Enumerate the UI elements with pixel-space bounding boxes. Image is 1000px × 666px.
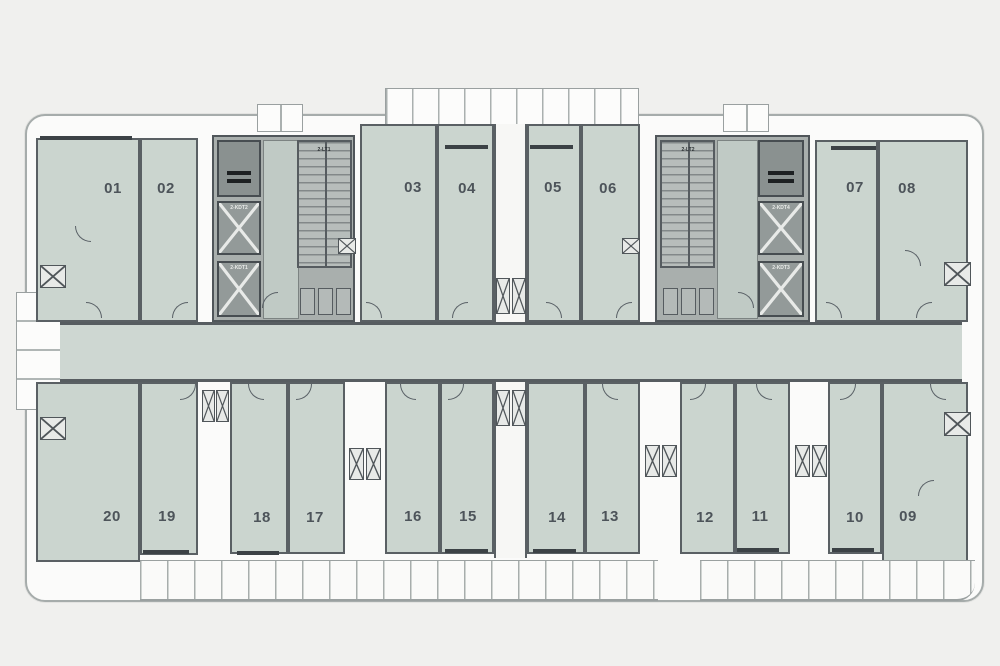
left-core-duct (300, 288, 315, 315)
window-sill (832, 548, 874, 552)
unit-label-18: 18 (253, 510, 271, 525)
central-corridor (60, 322, 962, 382)
unit-10 (828, 382, 882, 554)
right-core-duct (699, 288, 714, 315)
window-sill (737, 548, 779, 552)
unit-13 (585, 382, 640, 554)
bath-shower-xbox (622, 238, 640, 254)
unit-12 (680, 382, 735, 554)
unit-18 (230, 382, 288, 554)
left-core-duct (318, 288, 333, 315)
unit-label-19: 19 (158, 509, 176, 524)
unit-label-17: 17 (306, 510, 324, 525)
unit-04 (437, 124, 494, 322)
shaft-xbox (496, 278, 510, 314)
unit-09 (882, 382, 968, 570)
left-core-elevator-2-label: 2-KDT2 (230, 206, 248, 211)
left-core-elevator-1-label: 2-KDT1 (230, 266, 248, 271)
unit-11 (735, 382, 790, 554)
unit-label-04: 04 (458, 181, 476, 196)
right-core-elevator-4-label: 2-KDT4 (772, 206, 790, 211)
unit-label-10: 10 (846, 510, 864, 525)
unit-15 (440, 382, 494, 554)
bath-shower-xbox (338, 238, 356, 254)
unit-label-16: 16 (404, 509, 422, 524)
lightwell-xbox (662, 445, 677, 477)
unit-label-15: 15 (459, 509, 477, 524)
right-core-duct (681, 288, 696, 315)
top-left-small-balcony (257, 104, 303, 132)
unit-label-07: 07 (846, 180, 864, 195)
bath-shower-xbox (944, 412, 971, 436)
bottom-balcony-railing-left (140, 560, 658, 601)
unit-02 (140, 138, 198, 322)
right-core-duct (663, 288, 678, 315)
lightwell-xbox (812, 445, 827, 477)
vent-bars (227, 171, 251, 185)
unit-label-14: 14 (548, 510, 566, 525)
bath-shower-xbox (40, 265, 66, 288)
balcony-line (17, 349, 63, 351)
unit-20 (36, 382, 140, 562)
window-sill (40, 136, 132, 140)
unit-03 (360, 124, 437, 322)
unit-label-02: 02 (157, 181, 175, 196)
lightwell-xbox (795, 445, 810, 477)
bath-shower-xbox (40, 417, 66, 440)
unit-label-08: 08 (898, 181, 916, 196)
right-core-elevator-3-label: 2-KDT3 (772, 266, 790, 271)
window-sill (445, 549, 488, 553)
window-sill (445, 145, 488, 149)
unit-05 (527, 124, 581, 322)
lightwell-xbox (216, 390, 229, 422)
balcony-divider (280, 105, 282, 131)
shaft-xbox (512, 278, 526, 314)
floor-plan-page: { "figure": { "type": "apartment-floor-p… (0, 0, 1000, 666)
unit-label-01: 01 (104, 181, 122, 196)
left-core-lobby (263, 140, 299, 319)
unit-label-20: 20 (103, 509, 121, 524)
unit-14 (527, 382, 585, 554)
window-sill (530, 145, 573, 149)
right-core-vent-shaft (758, 140, 804, 197)
vent-bars (768, 171, 793, 185)
shaft-xbox (496, 390, 510, 426)
unit-label-09: 09 (899, 509, 917, 524)
unit-label-06: 06 (599, 181, 617, 196)
right-core-stair-label: 2-LT2 (682, 148, 695, 153)
lightwell-xbox (645, 445, 660, 477)
stair-divider (688, 142, 690, 266)
unit-06 (581, 124, 640, 322)
unit-17 (288, 382, 345, 554)
unit-label-03: 03 (404, 180, 422, 195)
lightwell-xbox (349, 448, 364, 480)
balcony-line (17, 378, 63, 380)
unit-label-05: 05 (544, 180, 562, 195)
bottom-balcony-railing-right (700, 560, 975, 601)
unit-label-13: 13 (601, 509, 619, 524)
bath-shower-xbox (944, 262, 971, 286)
left-core-duct (336, 288, 351, 315)
window-sill (237, 551, 279, 555)
window-sill (533, 549, 576, 553)
unit-label-12: 12 (696, 510, 714, 525)
stair-divider (325, 142, 327, 266)
unit-08 (878, 140, 968, 322)
unit-16 (385, 382, 440, 554)
top-right-small-balcony (723, 104, 769, 132)
window-sill (831, 146, 876, 150)
shaft-xbox (512, 390, 526, 426)
window-sill (143, 550, 189, 554)
unit-19 (140, 382, 198, 555)
lightwell-xbox (202, 390, 215, 422)
balcony-divider (746, 105, 748, 131)
left-core-stair-label: 2-LT1 (318, 148, 331, 153)
unit-07 (815, 140, 878, 322)
left-core-vent-shaft (217, 140, 261, 197)
right-core-stairs (660, 140, 715, 268)
unit-label-11: 11 (752, 509, 769, 524)
lightwell-xbox (366, 448, 381, 480)
